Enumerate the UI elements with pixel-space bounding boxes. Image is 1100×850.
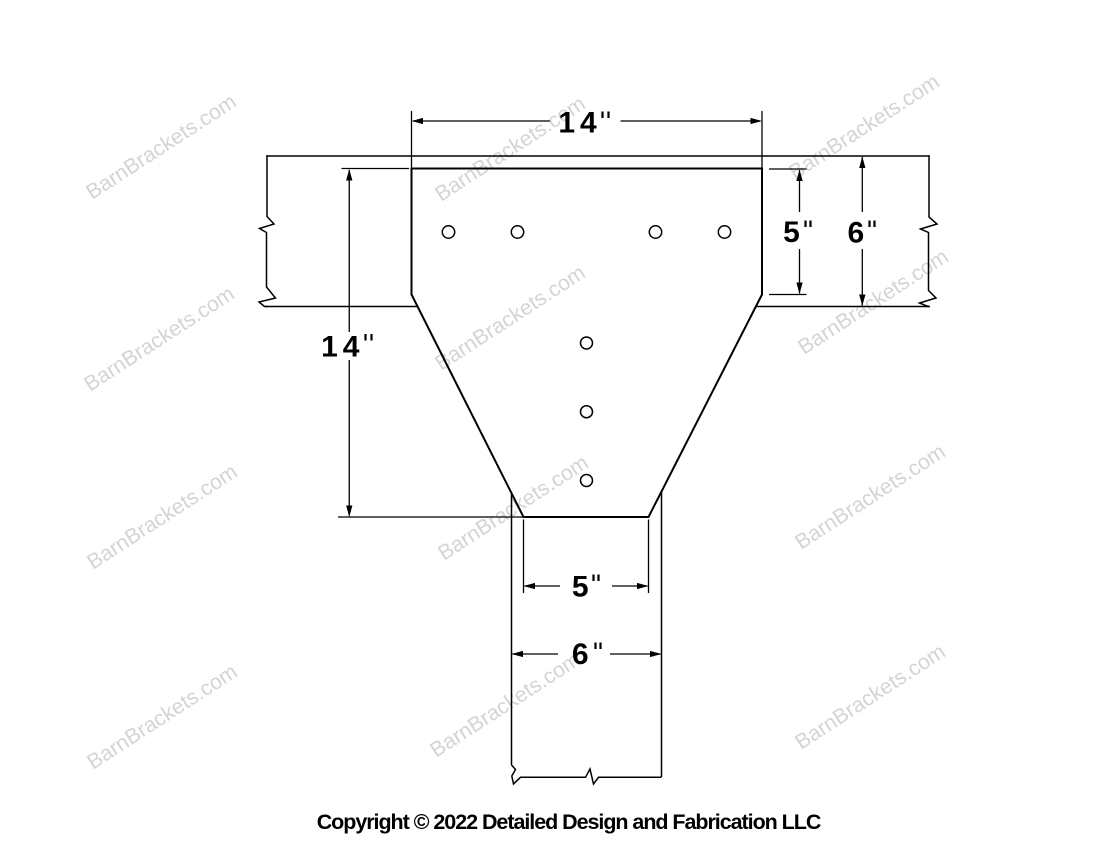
svg-text:5: 5 xyxy=(783,216,800,249)
svg-text:BarnBrackets.com: BarnBrackets.com xyxy=(434,450,593,565)
svg-text:BarnBrackets.com: BarnBrackets.com xyxy=(431,260,590,375)
svg-text:BarnBrackets.com: BarnBrackets.com xyxy=(83,659,242,774)
svg-text:6: 6 xyxy=(572,638,589,671)
svg-text:BarnBrackets.com: BarnBrackets.com xyxy=(80,281,239,396)
svg-text:BarnBrackets.com: BarnBrackets.com xyxy=(82,89,241,204)
svg-text:6: 6 xyxy=(848,217,865,250)
svg-text:BarnBrackets.com: BarnBrackets.com xyxy=(426,647,585,762)
svg-text:14: 14 xyxy=(558,107,601,140)
svg-text:BarnBrackets.com: BarnBrackets.com xyxy=(791,639,950,754)
svg-text:BarnBrackets.com: BarnBrackets.com xyxy=(791,439,950,554)
svg-text:Copyright © 2022 Detailed Desi: Copyright © 2022 Detailed Design and Fab… xyxy=(317,810,821,834)
svg-text:14: 14 xyxy=(321,331,364,364)
svg-text:5: 5 xyxy=(572,571,589,604)
svg-text:BarnBrackets.com: BarnBrackets.com xyxy=(83,459,242,574)
